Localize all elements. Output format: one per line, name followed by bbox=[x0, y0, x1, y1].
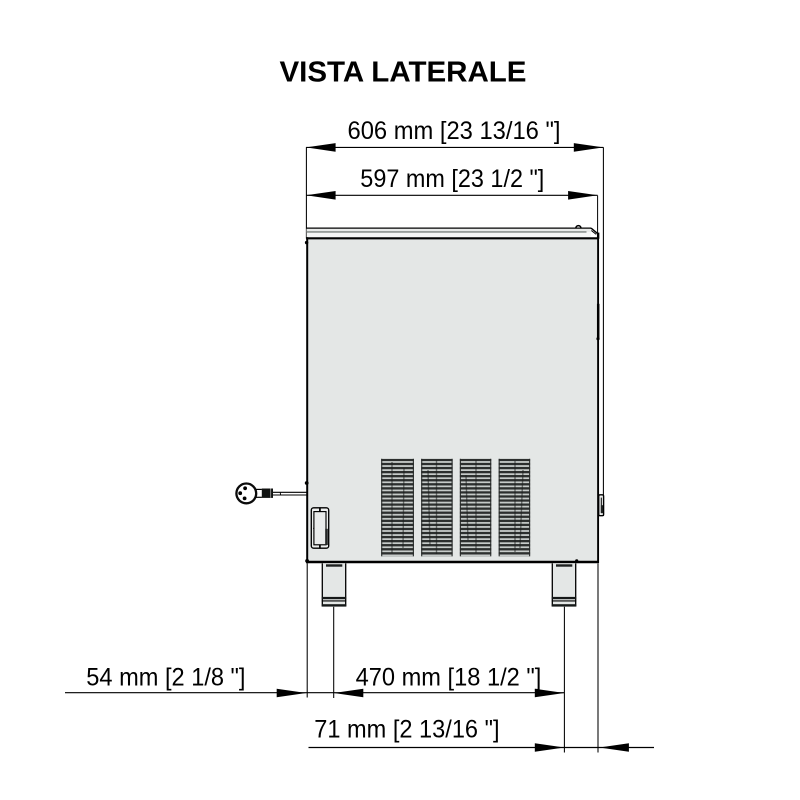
svg-text:71 mm [2 13/16 "]: 71 mm [2 13/16 "] bbox=[314, 716, 499, 744]
svg-text:VISTA LATERALE: VISTA LATERALE bbox=[280, 57, 527, 89]
svg-text:54 mm [2 1/8 "]: 54 mm [2 1/8 "] bbox=[86, 664, 245, 692]
svg-text:470 mm [18 1/2 "]: 470 mm [18 1/2 "] bbox=[356, 664, 542, 692]
svg-text:606 mm [23 13/16 "]: 606 mm [23 13/16 "] bbox=[348, 117, 561, 145]
svg-text:597 mm [23 1/2 "]: 597 mm [23 1/2 "] bbox=[360, 165, 544, 193]
